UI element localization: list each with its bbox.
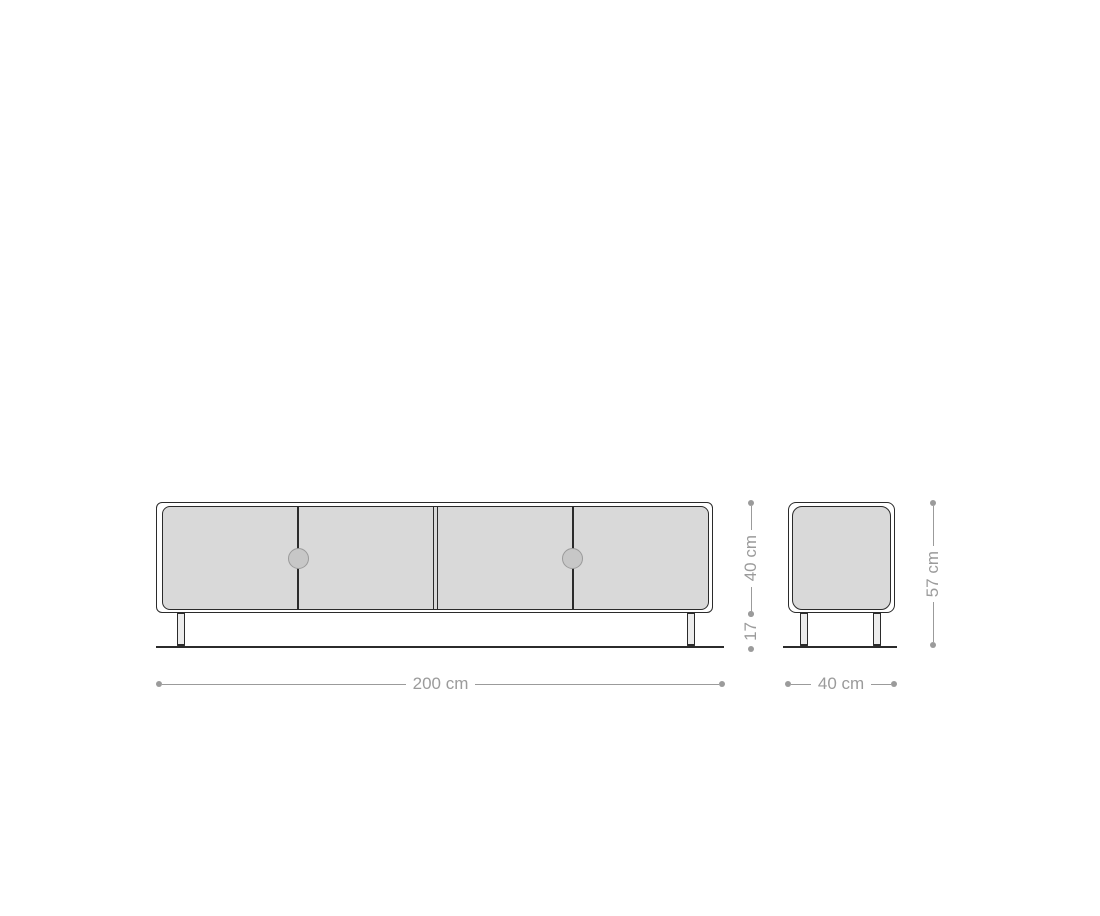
dimension-depth: 40 cm bbox=[785, 675, 897, 693]
dimension-width: 200 cm bbox=[156, 675, 725, 693]
dimension-depth-label: 40 cm bbox=[818, 675, 864, 693]
door-handle-icon bbox=[562, 548, 583, 569]
dimension-leg-height: 17 bbox=[741, 611, 761, 651]
furniture-leg bbox=[873, 613, 881, 647]
lowboard-side-panel bbox=[792, 506, 891, 610]
dimension-line bbox=[933, 602, 934, 642]
furniture-leg bbox=[800, 613, 808, 647]
dimension-line bbox=[751, 506, 752, 530]
dimension-total-height: 57 cm bbox=[923, 500, 943, 648]
dimension-endpoint-dot bbox=[748, 646, 754, 652]
dimension-line bbox=[475, 684, 719, 685]
dimension-endpoint-dot bbox=[748, 611, 754, 617]
dimension-line bbox=[871, 684, 891, 685]
dimension-total-height-label: 57 cm bbox=[924, 551, 942, 597]
technical-drawing-canvas: 200 cm 40 cm 40 cm 17 57 cm bbox=[0, 0, 1100, 916]
dimension-line bbox=[751, 587, 752, 611]
dimension-leg-height-label: 17 bbox=[742, 622, 760, 641]
dimension-endpoint-dot bbox=[719, 681, 725, 687]
dimension-line bbox=[933, 506, 934, 546]
dimension-endpoint-dot bbox=[891, 681, 897, 687]
dimension-endpoint-dot bbox=[930, 642, 936, 648]
dimension-body-height: 40 cm bbox=[741, 500, 761, 617]
dimension-line bbox=[162, 684, 406, 685]
floor-line-front bbox=[156, 646, 724, 648]
dimension-width-label: 200 cm bbox=[413, 675, 469, 693]
furniture-leg bbox=[177, 613, 185, 647]
door-handle-icon bbox=[288, 548, 309, 569]
dimension-body-height-label: 40 cm bbox=[742, 535, 760, 581]
furniture-leg bbox=[687, 613, 695, 647]
dimension-line bbox=[791, 684, 811, 685]
floor-line-side bbox=[783, 646, 897, 648]
door-divider-center bbox=[433, 506, 438, 610]
